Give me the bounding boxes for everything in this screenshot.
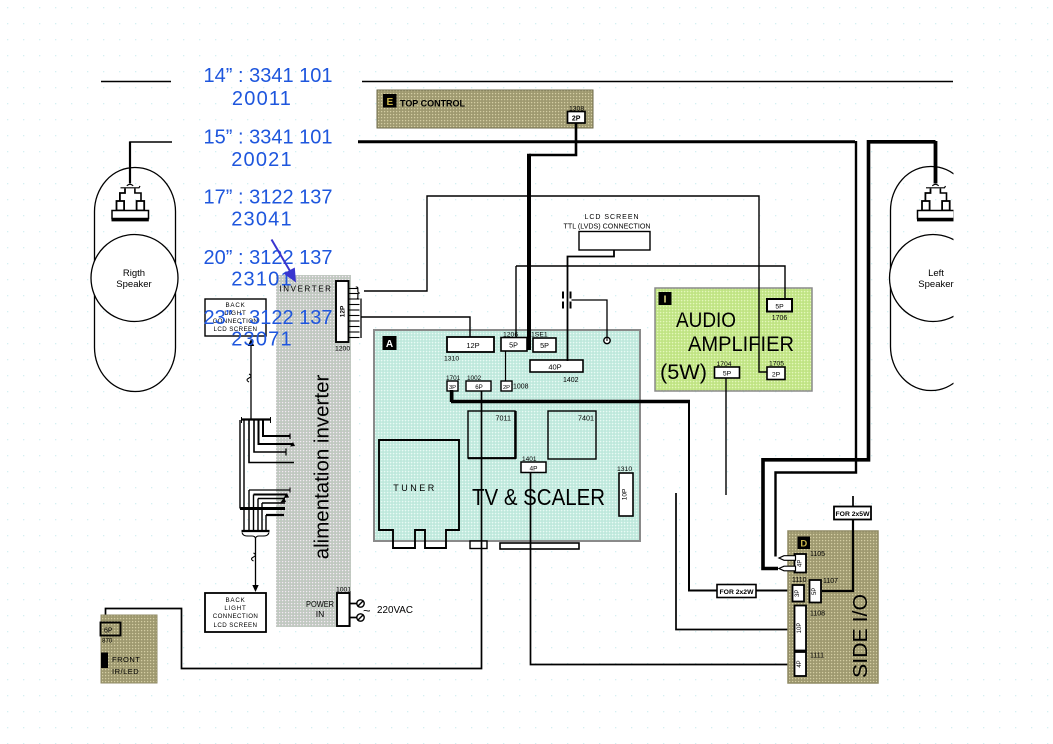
svg-text:6P: 6P bbox=[475, 384, 483, 391]
svg-text:1310: 1310 bbox=[444, 356, 459, 363]
svg-text:4P: 4P bbox=[797, 660, 803, 667]
svg-text:4P: 4P bbox=[530, 466, 538, 473]
svg-text:6P: 6P bbox=[104, 628, 113, 635]
svg-text:BACK: BACK bbox=[225, 597, 245, 604]
svg-text:alimentation inverter: alimentation inverter bbox=[311, 375, 334, 560]
svg-text:870: 870 bbox=[102, 638, 113, 645]
svg-text:FOR 2x5W: FOR 2x5W bbox=[836, 511, 871, 518]
svg-text:1105: 1105 bbox=[810, 551, 825, 558]
svg-text:Speaker: Speaker bbox=[918, 279, 953, 290]
svg-text:15” : 3341 101: 15” : 3341 101 bbox=[204, 127, 333, 149]
svg-text:}: } bbox=[356, 284, 361, 300]
svg-text:1200: 1200 bbox=[335, 346, 350, 353]
svg-text:2P: 2P bbox=[772, 372, 781, 379]
svg-text:1402: 1402 bbox=[563, 377, 579, 384]
svg-text:20011: 20011 bbox=[232, 88, 292, 110]
svg-text:12P: 12P bbox=[340, 305, 347, 317]
svg-text:TTL (LVDS) CONNECTION: TTL (LVDS) CONNECTION bbox=[564, 224, 651, 231]
svg-text:23101: 23101 bbox=[231, 269, 293, 291]
svg-text:5P: 5P bbox=[540, 341, 549, 350]
svg-text:AMPLIFIER: AMPLIFIER bbox=[688, 333, 794, 356]
svg-text:Left: Left bbox=[928, 268, 944, 279]
svg-text:FRONT: FRONT bbox=[112, 655, 140, 664]
svg-text:A: A bbox=[386, 339, 393, 350]
svg-text:IR/LED: IR/LED bbox=[112, 667, 139, 676]
svg-text:IN: IN bbox=[316, 609, 325, 619]
svg-text:LIGHT: LIGHT bbox=[224, 605, 246, 612]
svg-text:D: D bbox=[800, 539, 807, 550]
svg-text:23041: 23041 bbox=[231, 209, 293, 231]
svg-text:5P: 5P bbox=[775, 304, 784, 311]
svg-text:(5W): (5W) bbox=[660, 361, 707, 384]
svg-text:5P: 5P bbox=[723, 371, 732, 378]
svg-text:1107: 1107 bbox=[823, 578, 838, 585]
svg-text:12P: 12P bbox=[466, 341, 479, 350]
svg-text:POWER: POWER bbox=[306, 599, 334, 609]
svg-text:Speaker: Speaker bbox=[116, 279, 151, 290]
svg-text:2P: 2P bbox=[572, 115, 581, 122]
svg-text:AUDIO: AUDIO bbox=[676, 309, 736, 332]
svg-text:7401: 7401 bbox=[578, 414, 594, 423]
svg-text:14” : 3341 101: 14” : 3341 101 bbox=[204, 65, 333, 87]
svg-text:FOR 2x2W: FOR 2x2W bbox=[720, 589, 755, 596]
svg-text:20021: 20021 bbox=[231, 149, 293, 171]
svg-text:E: E bbox=[386, 97, 393, 108]
svg-text:5P: 5P bbox=[812, 588, 818, 595]
svg-text:40P: 40P bbox=[548, 363, 561, 372]
svg-text:SIDE I/O: SIDE I/O bbox=[850, 594, 872, 678]
svg-text:TOP CONTROL: TOP CONTROL bbox=[400, 99, 465, 110]
svg-text:1111: 1111 bbox=[810, 653, 824, 660]
svg-text:I: I bbox=[664, 295, 667, 306]
svg-text:CONNECTION: CONNECTION bbox=[213, 613, 259, 620]
svg-text:1706: 1706 bbox=[772, 315, 788, 322]
svg-text:TV & SCALER: TV & SCALER bbox=[472, 484, 605, 510]
svg-text:23071: 23071 bbox=[231, 329, 293, 351]
svg-text:1108: 1108 bbox=[810, 611, 825, 618]
svg-text:220VAC: 220VAC bbox=[377, 604, 413, 616]
svg-text:10P: 10P bbox=[797, 623, 803, 634]
svg-text:3P: 3P bbox=[795, 590, 801, 597]
svg-text:20” : 3122 137: 20” : 3122 137 bbox=[204, 247, 333, 269]
svg-text:10P: 10P bbox=[622, 489, 629, 501]
svg-text:23” : 3122 137: 23” : 3122 137 bbox=[204, 307, 333, 329]
svg-text:4P: 4P bbox=[797, 560, 803, 567]
svg-text:7011: 7011 bbox=[496, 414, 511, 423]
svg-text:1110: 1110 bbox=[792, 577, 807, 584]
svg-text:Rigth: Rigth bbox=[123, 268, 145, 279]
svg-text:TUNER: TUNER bbox=[393, 483, 437, 493]
svg-text:1008: 1008 bbox=[513, 384, 529, 391]
svg-text:~: ~ bbox=[363, 603, 371, 618]
svg-text:2P: 2P bbox=[503, 385, 510, 391]
svg-text:17” : 3122 137: 17” : 3122 137 bbox=[204, 187, 333, 209]
svg-text:1310: 1310 bbox=[617, 466, 632, 473]
svg-text:LCD SCREEN: LCD SCREEN bbox=[214, 622, 258, 629]
svg-text:LCD SCREEN: LCD SCREEN bbox=[584, 214, 639, 221]
svg-text:5P: 5P bbox=[509, 341, 518, 350]
